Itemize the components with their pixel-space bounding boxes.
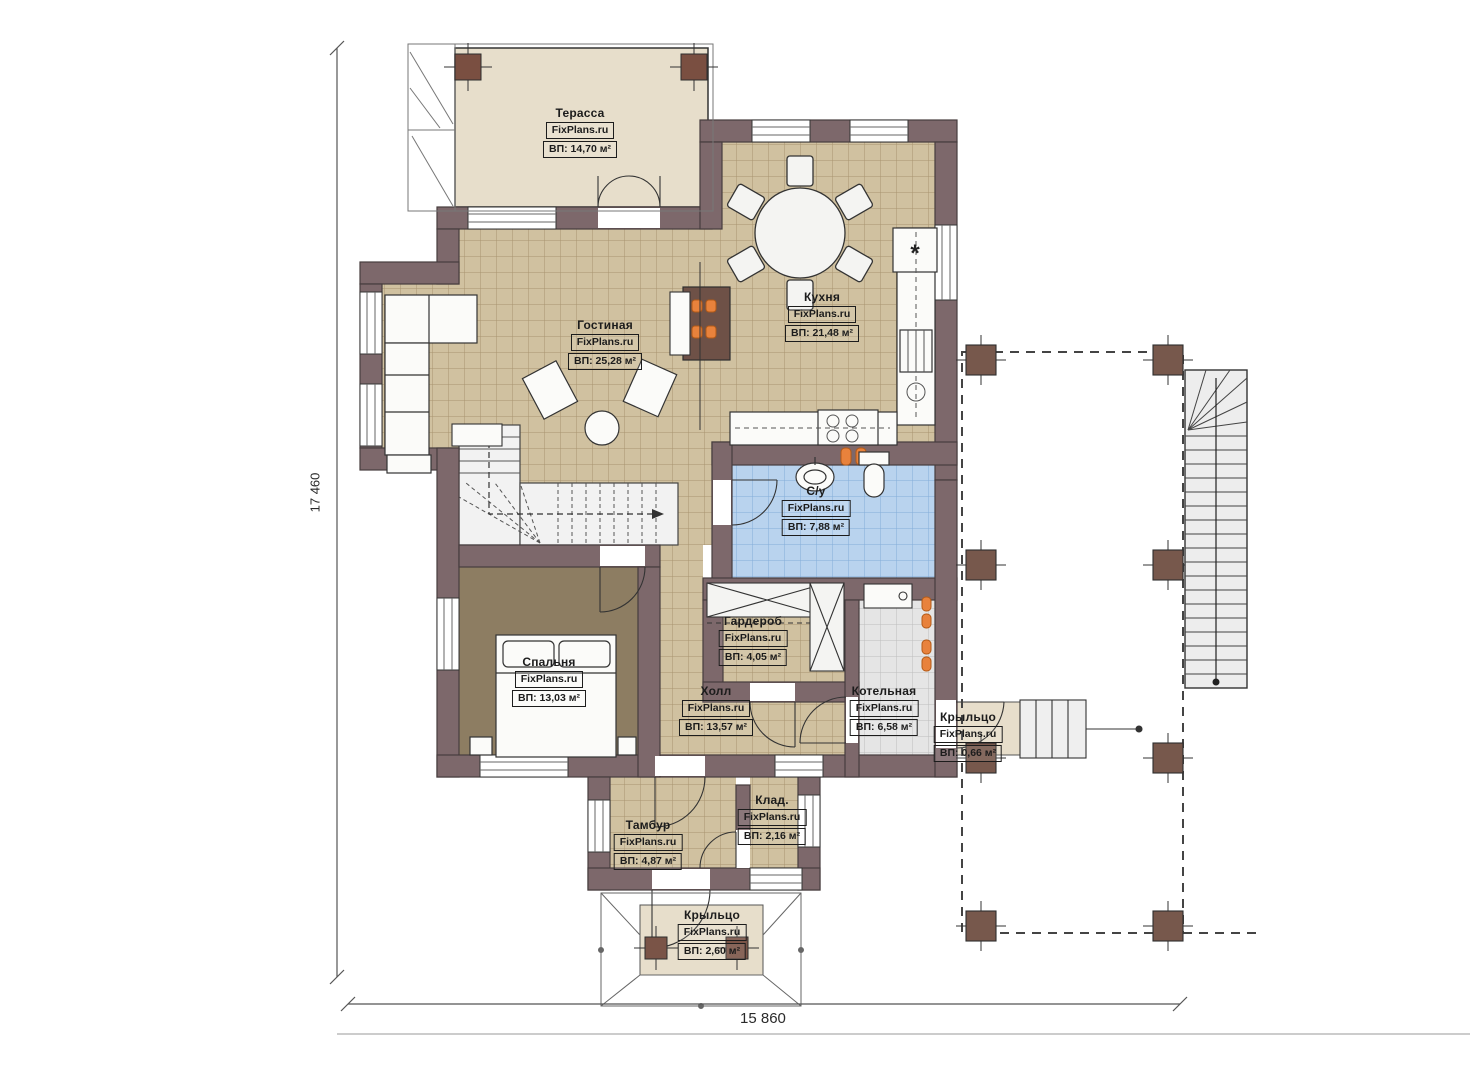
- brand-badge: FixPlans.ru: [782, 500, 851, 517]
- room-name: Терасса: [556, 106, 605, 120]
- room-area: ВП: 13,03 м²: [512, 690, 586, 707]
- room-area: ВП: 2,16 м²: [738, 828, 806, 845]
- brand-badge: FixPlans.ru: [678, 924, 747, 941]
- stair-start-marker: [1213, 679, 1220, 686]
- room-area: ВП: 4,05 м²: [719, 649, 787, 666]
- room-area: ВП: 21,48 м²: [785, 325, 859, 342]
- room-name: Клад.: [755, 793, 789, 807]
- room-name: Крыльцо: [684, 908, 740, 922]
- toilet-bowl: [864, 464, 884, 497]
- column: [1153, 743, 1183, 773]
- brand-badge: FixPlans.ru: [515, 671, 584, 688]
- boiler-unit: [864, 584, 912, 608]
- brand-badge: FixPlans.ru: [682, 700, 751, 717]
- column: [1153, 550, 1183, 580]
- column: [645, 937, 667, 959]
- room-name: Тамбур: [626, 818, 671, 832]
- nightstand: [618, 737, 636, 755]
- column: [1153, 345, 1183, 375]
- brand-badge: FixPlans.ru: [850, 700, 919, 717]
- column: [966, 550, 996, 580]
- brand-badge: FixPlans.ru: [788, 306, 857, 323]
- column: [681, 54, 707, 80]
- room-area: ВП: 4,87 м²: [614, 853, 682, 870]
- room-area: ВП: 7,88 м²: [782, 519, 850, 536]
- room-label-kitchen: Кухня FixPlans.ru ВП: 21,48 м²: [785, 290, 859, 342]
- room-label-boiler: Котельная FixPlans.ru ВП: 6,58 м²: [850, 684, 919, 736]
- room-label-porch-right: Крыльцо FixPlans.ru ВП: 0,66 м²: [934, 710, 1003, 762]
- room-area: ВП: 6,58 м²: [850, 719, 918, 736]
- room-area: ВП: 2,60 м²: [678, 943, 746, 960]
- room-name: Котельная: [852, 684, 917, 698]
- room-label-hall: Холл FixPlans.ru ВП: 13,57 м²: [679, 684, 753, 736]
- room-label-terrace: Терасса FixPlans.ru ВП: 14,70 м²: [543, 106, 617, 158]
- room-label-wardrobe: Гардероб FixPlans.ru ВП: 4,05 м²: [719, 614, 788, 666]
- brand-badge: FixPlans.ru: [614, 834, 683, 851]
- brand-badge: FixPlans.ru: [546, 122, 615, 139]
- column: [1153, 911, 1183, 941]
- room-area: ВП: 25,28 м²: [568, 353, 642, 370]
- stairs-external: [1185, 370, 1247, 688]
- dimension-vertical: 17 460: [307, 473, 322, 513]
- room-name: Крыльцо: [940, 710, 996, 724]
- room-name: Спальня: [522, 655, 575, 669]
- room-name: Холл: [701, 684, 732, 698]
- room-label-porch-front: Крыльцо FixPlans.ru ВП: 2,60 м²: [678, 908, 747, 960]
- room-label-living: Гостиная FixPlans.ru ВП: 25,28 м²: [568, 318, 642, 370]
- column: [966, 345, 996, 375]
- room-name: С/у: [806, 484, 825, 498]
- room-name: Гостиная: [577, 318, 633, 332]
- chimney-vent-icon: *: [893, 232, 937, 276]
- column: [966, 911, 996, 941]
- room-area: ВП: 13,57 м²: [679, 719, 753, 736]
- room-label-tambour: Тамбур FixPlans.ru ВП: 4,87 м²: [614, 818, 683, 870]
- toilet-tank: [859, 452, 889, 465]
- column: [455, 54, 481, 80]
- room-name: Гардероб: [724, 614, 782, 628]
- brand-badge: FixPlans.ru: [738, 809, 807, 826]
- room-label-bedroom: Спальня FixPlans.ru ВП: 13,03 м²: [512, 655, 586, 707]
- floor-plan-canvas: Терасса FixPlans.ru ВП: 14,70 м² Гостина…: [0, 0, 1473, 1080]
- room-name: Кухня: [804, 290, 840, 304]
- room-label-bathroom: С/у FixPlans.ru ВП: 7,88 м²: [782, 484, 851, 536]
- side-table: [452, 424, 502, 446]
- room-area: ВП: 14,70 м²: [543, 141, 617, 158]
- nightstand: [470, 737, 492, 755]
- brand-badge: FixPlans.ru: [719, 630, 788, 647]
- porch-right-steps: [1020, 700, 1142, 758]
- room-label-storage: Клад. FixPlans.ru ВП: 2,16 м²: [738, 793, 807, 845]
- brand-badge: FixPlans.ru: [934, 726, 1003, 743]
- room-area: ВП: 0,66 м²: [934, 745, 1002, 762]
- brand-badge: FixPlans.ru: [571, 334, 640, 351]
- dimension-horizontal: 15 860: [740, 1010, 786, 1027]
